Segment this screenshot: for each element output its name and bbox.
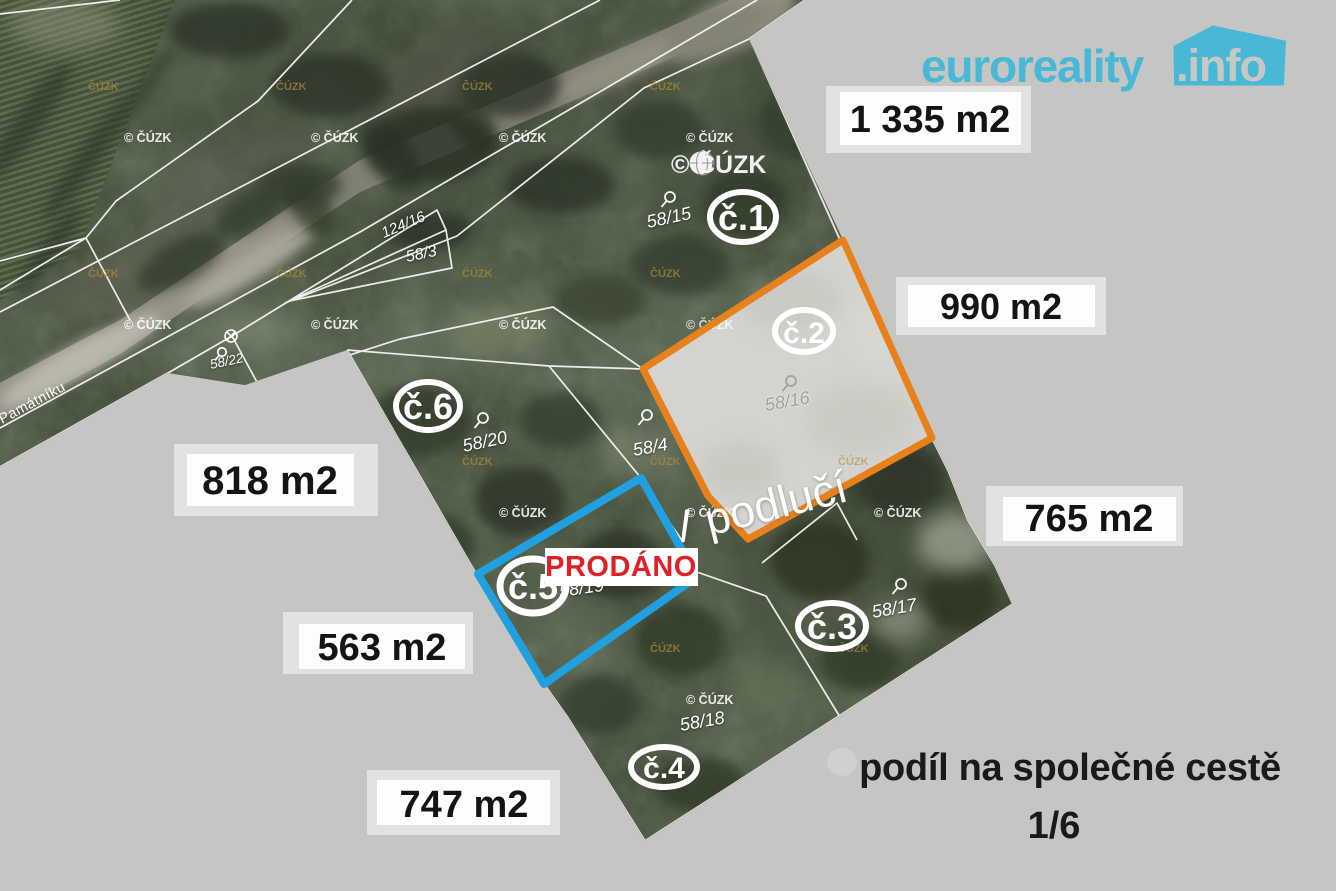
svg-text:PRODÁNO: PRODÁNO xyxy=(545,549,697,583)
svg-text:818 m2: 818 m2 xyxy=(202,459,338,503)
svg-text:č.6: č.6 xyxy=(403,386,453,427)
svg-text:© ČÚZK: © ČÚZK xyxy=(686,130,733,145)
svg-text:990 m2: 990 m2 xyxy=(940,286,1062,327)
svg-text:© ČÚZK: © ČÚZK xyxy=(311,130,358,145)
svg-text:ČÚZK: ČÚZK xyxy=(276,80,307,93)
svg-text:ČÚZK: ČÚZK xyxy=(88,267,119,280)
svg-text:č.2: č.2 xyxy=(783,317,825,350)
svg-text:© ČÚZK: © ČÚZK xyxy=(124,130,171,145)
svg-text:ČÚZK: ČÚZK xyxy=(838,455,869,468)
svg-text:euroreality: euroreality xyxy=(921,40,1145,92)
svg-text:č.1: č.1 xyxy=(718,197,768,238)
svg-text:podíl na společné cestě: podíl na společné cestě xyxy=(859,747,1281,789)
svg-text:© ČÚZK: © ČÚZK xyxy=(686,692,733,707)
svg-text:ČÚZK: ČÚZK xyxy=(276,267,307,280)
svg-text:765 m2: 765 m2 xyxy=(1025,498,1154,540)
svg-text:563 m2: 563 m2 xyxy=(318,627,447,669)
svg-text:ČÚZK: ČÚZK xyxy=(462,267,493,280)
svg-text:č.3: č.3 xyxy=(807,606,857,647)
svg-text:© ČÚZK: © ČÚZK xyxy=(874,505,921,520)
svg-text:ČÚZK: ČÚZK xyxy=(650,80,681,93)
svg-text:ČÚZK: ČÚZK xyxy=(462,80,493,93)
svg-text:ČÚZK: ČÚZK xyxy=(88,80,119,93)
svg-text:747 m2: 747 m2 xyxy=(400,784,529,826)
svg-text:ČÚZK: ČÚZK xyxy=(650,267,681,280)
svg-text:© ČÚZK: © ČÚZK xyxy=(311,317,358,332)
svg-text:ČÚZK: ČÚZK xyxy=(650,642,681,655)
svg-text:.info: .info xyxy=(1176,40,1266,91)
svg-text:ČÚZK: ČÚZK xyxy=(650,455,681,468)
svg-text:ČÚZK: ČÚZK xyxy=(462,455,493,468)
svg-text:ČÚZK: ČÚZK xyxy=(697,149,766,179)
svg-text:1/6: 1/6 xyxy=(1028,805,1081,847)
svg-text:© ČÚZK: © ČÚZK xyxy=(124,317,171,332)
svg-text:© ČÚZK: © ČÚZK xyxy=(499,505,546,520)
svg-text:© ČÚZK: © ČÚZK xyxy=(499,130,546,145)
svg-text:č.4: č.4 xyxy=(643,752,685,785)
svg-text:1 335 m2: 1 335 m2 xyxy=(850,99,1011,141)
svg-text:©: © xyxy=(671,151,690,179)
svg-text:© ČÚZK: © ČÚZK xyxy=(499,317,546,332)
